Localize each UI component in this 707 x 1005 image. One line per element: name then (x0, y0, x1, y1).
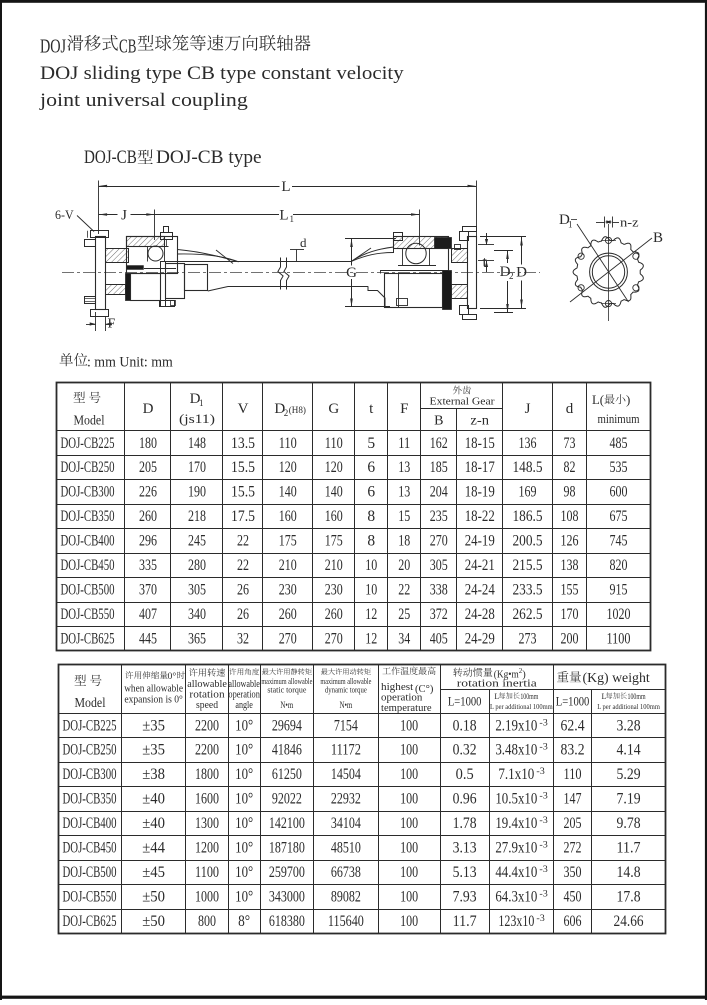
svg-text:147: 147 (564, 791, 582, 808)
svg-text:338: 338 (430, 581, 448, 598)
svg-text:DOJ sliding type CB type const: DOJ sliding type CB type constant veloci… (40, 63, 404, 84)
svg-text:2: 2 (509, 271, 514, 281)
svg-text:±35: ±35 (142, 742, 165, 759)
svg-text:15.5: 15.5 (231, 484, 255, 501)
svg-text:24-28: 24-28 (465, 606, 495, 623)
svg-text:100: 100 (400, 717, 418, 734)
svg-text:angle: angle (235, 700, 253, 711)
svg-text:0.5: 0.5 (456, 766, 474, 783)
svg-text:allowable: allowable (187, 679, 227, 690)
svg-text:5.13: 5.13 (453, 864, 477, 881)
svg-text:27.9x10: 27.9x10 (495, 840, 537, 857)
svg-text:3.48x10: 3.48x10 (495, 742, 537, 759)
svg-text:6: 6 (367, 459, 375, 476)
svg-text:13.5: 13.5 (231, 435, 255, 452)
svg-text:9.78: 9.78 (617, 815, 641, 832)
svg-text:when allowable: when allowable (124, 684, 183, 695)
svg-text:DOJ-CB250: DOJ-CB250 (63, 742, 117, 759)
svg-text:11172: 11172 (331, 742, 361, 759)
svg-text:12: 12 (365, 606, 377, 623)
svg-text:15: 15 (398, 508, 410, 525)
svg-text:13: 13 (398, 484, 410, 501)
svg-text:Model: Model (74, 414, 105, 429)
svg-text:-3: -3 (539, 865, 548, 875)
svg-text:123x10: 123x10 (498, 913, 534, 930)
svg-text:±44: ±44 (142, 840, 165, 857)
svg-text:operation: operation (228, 690, 260, 701)
svg-text:186.5: 186.5 (513, 508, 543, 525)
svg-text:48510: 48510 (331, 840, 361, 857)
svg-text:0.96: 0.96 (453, 791, 477, 808)
svg-text:260: 260 (325, 606, 343, 623)
svg-text:126: 126 (561, 533, 579, 550)
svg-text:260: 260 (279, 606, 297, 623)
svg-text:200: 200 (561, 630, 579, 647)
svg-text:temperature: temperature (381, 703, 432, 714)
svg-text:10.5x10: 10.5x10 (495, 791, 537, 808)
svg-text:606: 606 (564, 913, 582, 930)
svg-text:Model: Model (75, 696, 106, 711)
svg-text:175: 175 (279, 533, 297, 550)
svg-text:-3: -3 (539, 841, 548, 851)
svg-text:18-17: 18-17 (465, 459, 495, 476)
svg-text:G: G (328, 401, 339, 417)
svg-text:7.93: 7.93 (453, 888, 477, 905)
svg-text:18-15: 18-15 (465, 435, 495, 452)
svg-text:±45: ±45 (142, 864, 165, 881)
svg-text:4.14: 4.14 (617, 742, 641, 759)
svg-text:180: 180 (139, 435, 157, 452)
svg-text:343000: 343000 (269, 888, 305, 905)
svg-text:speed: speed (196, 700, 219, 711)
svg-text:100: 100 (400, 864, 418, 881)
svg-text:rotation: rotation (189, 690, 225, 701)
svg-text:1600: 1600 (195, 791, 219, 808)
svg-text:170: 170 (188, 459, 206, 476)
svg-text:10°: 10° (235, 717, 253, 734)
svg-text:-3: -3 (539, 792, 548, 802)
svg-text:100mm: 100mm (520, 692, 539, 701)
svg-text:10°: 10° (235, 840, 253, 857)
svg-text:±40: ±40 (142, 815, 165, 832)
svg-text:3.28: 3.28 (617, 717, 641, 734)
svg-text:535: 535 (610, 459, 628, 476)
svg-text:10°: 10° (235, 864, 253, 881)
svg-text:185: 185 (430, 459, 448, 476)
svg-text:B: B (653, 230, 663, 246)
svg-text:L=1000: L=1000 (556, 695, 590, 709)
svg-text:18-22: 18-22 (465, 508, 495, 525)
svg-text:235: 235 (430, 508, 448, 525)
svg-text:10°: 10° (235, 742, 253, 759)
svg-text:210: 210 (325, 557, 343, 574)
svg-text:10°: 10° (235, 815, 253, 832)
svg-text:11: 11 (398, 435, 410, 452)
svg-text:24-29: 24-29 (465, 630, 495, 647)
svg-text:372: 372 (430, 606, 448, 623)
svg-text:187180: 187180 (269, 840, 305, 857)
svg-text:DOJ-CB225: DOJ-CB225 (61, 435, 115, 452)
svg-text:5: 5 (367, 435, 375, 452)
svg-text:DOJ-CB350: DOJ-CB350 (63, 791, 117, 808)
svg-text:L(: L( (592, 392, 604, 407)
svg-text:100: 100 (400, 766, 418, 783)
svg-text:41846: 41846 (272, 742, 302, 759)
svg-text:340: 340 (188, 606, 206, 623)
svg-text:DOJ-CB550: DOJ-CB550 (63, 888, 117, 905)
svg-text:26: 26 (237, 606, 249, 623)
svg-text:92022: 92022 (272, 791, 302, 808)
svg-text:(H8): (H8) (289, 405, 306, 415)
svg-text:270: 270 (279, 630, 297, 647)
svg-text:296: 296 (139, 533, 157, 550)
svg-text:13: 13 (398, 459, 410, 476)
svg-text:226: 226 (139, 484, 157, 501)
svg-text:11.7: 11.7 (453, 913, 477, 930)
svg-text:±35: ±35 (142, 717, 165, 734)
svg-text:100: 100 (400, 913, 418, 930)
svg-text:370: 370 (139, 581, 157, 598)
svg-text:140: 140 (325, 484, 343, 501)
svg-text:17.5: 17.5 (231, 508, 255, 525)
svg-text:120: 120 (279, 459, 297, 476)
svg-text:136: 136 (519, 435, 537, 452)
svg-text:25: 25 (398, 606, 410, 623)
svg-text:12: 12 (365, 630, 377, 647)
svg-text:62.4: 62.4 (561, 717, 585, 734)
svg-text:-3: -3 (539, 816, 548, 826)
svg-text:1100: 1100 (195, 864, 219, 881)
svg-text:(Kg) weight: (Kg) weight (583, 670, 650, 685)
svg-text:100: 100 (400, 888, 418, 905)
svg-text:245: 245 (188, 533, 206, 550)
svg-text:218: 218 (188, 508, 206, 525)
svg-text:15.5: 15.5 (231, 459, 255, 476)
svg-text:dynamic torque: dynamic torque (325, 686, 367, 695)
svg-text:DOJ-CB625: DOJ-CB625 (61, 630, 115, 647)
svg-text:272: 272 (564, 840, 582, 857)
svg-text:static torque: static torque (267, 686, 306, 695)
svg-text:DOJ-CB300: DOJ-CB300 (63, 766, 117, 783)
svg-text:0°: 0° (168, 671, 177, 682)
svg-text:22: 22 (237, 533, 249, 550)
svg-text:±50: ±50 (142, 913, 165, 930)
svg-text:DOJ-CB450: DOJ-CB450 (63, 840, 117, 857)
svg-text:DOJ-CB400: DOJ-CB400 (63, 815, 117, 832)
svg-text:8°: 8° (238, 913, 250, 930)
svg-text:24-19: 24-19 (465, 533, 495, 550)
svg-text:N•m: N•m (280, 700, 293, 710)
svg-text:DOJ-CB500: DOJ-CB500 (63, 864, 117, 881)
svg-text:230: 230 (325, 581, 343, 598)
svg-text:73: 73 (564, 435, 576, 452)
svg-text:100: 100 (400, 840, 418, 857)
svg-text:1200: 1200 (195, 840, 219, 857)
svg-text:DOJ: DOJ (40, 36, 66, 58)
svg-text:8: 8 (367, 508, 375, 525)
svg-text:F: F (108, 317, 116, 332)
svg-text:305: 305 (430, 557, 448, 574)
svg-text:26: 26 (237, 581, 249, 598)
svg-text:100: 100 (400, 742, 418, 759)
svg-text:142100: 142100 (269, 815, 305, 832)
svg-text:618380: 618380 (269, 913, 305, 930)
svg-text:D: D (143, 401, 154, 417)
svg-text:10°: 10° (235, 888, 253, 905)
svg-text:3.13: 3.13 (453, 840, 477, 857)
svg-text:32: 32 (237, 630, 249, 647)
svg-text:600: 600 (610, 484, 628, 501)
svg-text:-3: -3 (539, 718, 548, 728)
svg-text:DOJ-CB300: DOJ-CB300 (61, 484, 115, 501)
svg-text:445: 445 (139, 630, 157, 647)
svg-text:365: 365 (188, 630, 206, 647)
svg-text:17.8: 17.8 (617, 888, 641, 905)
svg-text:24-24: 24-24 (465, 581, 495, 598)
svg-text:(js11): (js11) (179, 411, 215, 426)
svg-text:0.32: 0.32 (453, 742, 477, 759)
svg-text:305: 305 (188, 581, 206, 598)
svg-text:205: 205 (564, 815, 582, 832)
svg-text:D: D (516, 265, 527, 281)
svg-text:675: 675 (610, 508, 628, 525)
svg-text:2: 2 (284, 408, 289, 418)
svg-text:DOJ-CB350: DOJ-CB350 (61, 508, 115, 525)
svg-text:F: F (400, 401, 408, 417)
svg-text:215.5: 215.5 (513, 557, 543, 574)
svg-text:B: B (434, 414, 443, 429)
svg-text:115640: 115640 (328, 913, 364, 930)
svg-text:44.4x10: 44.4x10 (495, 864, 537, 881)
svg-text:1000: 1000 (195, 888, 219, 905)
svg-text:0.18: 0.18 (453, 717, 477, 734)
svg-text:83.2: 83.2 (561, 742, 585, 759)
svg-text:19.4x10: 19.4x10 (495, 815, 537, 832)
svg-text:-3: -3 (539, 743, 548, 753)
svg-text:138: 138 (561, 557, 579, 574)
svg-text:operation: operation (381, 693, 422, 704)
svg-text:d: d (566, 401, 574, 417)
svg-text:DOJ-CB: DOJ-CB (84, 147, 137, 168)
svg-text:29694: 29694 (272, 717, 302, 734)
svg-text:2200: 2200 (195, 742, 219, 759)
svg-text:140: 140 (279, 484, 297, 501)
svg-text:233.5: 233.5 (513, 581, 543, 598)
svg-text:G: G (346, 265, 357, 281)
svg-text:148.5: 148.5 (513, 459, 543, 476)
svg-text:minimum: minimum (598, 411, 640, 426)
svg-text:highest: highest (381, 682, 413, 693)
svg-text:800: 800 (198, 913, 216, 930)
svg-text:10°: 10° (235, 766, 253, 783)
svg-text:61250: 61250 (272, 766, 302, 783)
svg-text:L per additional 100mm: L per additional 100mm (490, 702, 553, 711)
svg-text:34: 34 (398, 630, 410, 647)
svg-text:335: 335 (139, 557, 157, 574)
svg-text:22932: 22932 (331, 791, 361, 808)
svg-text:22: 22 (398, 581, 410, 598)
svg-text:18: 18 (398, 533, 410, 550)
svg-text:10: 10 (365, 557, 377, 574)
svg-text:405: 405 (430, 630, 448, 647)
svg-text:259700: 259700 (269, 864, 305, 881)
svg-text:20: 20 (398, 557, 410, 574)
svg-text:7154: 7154 (334, 717, 358, 734)
svg-text:±50: ±50 (142, 888, 165, 905)
svg-text:DOJ-CB type: DOJ-CB type (156, 147, 262, 168)
svg-text:1020: 1020 (607, 606, 631, 623)
svg-text:1800: 1800 (195, 766, 219, 783)
svg-text:100: 100 (400, 815, 418, 832)
svg-text:DOJ-CB450: DOJ-CB450 (61, 557, 115, 574)
svg-text:820: 820 (610, 557, 628, 574)
svg-text:273: 273 (519, 630, 537, 647)
svg-text:98: 98 (564, 484, 576, 501)
svg-text:120: 120 (325, 459, 343, 476)
svg-text:24-21: 24-21 (465, 557, 495, 574)
svg-text:89082: 89082 (331, 888, 361, 905)
svg-text:18-19: 18-19 (465, 484, 495, 501)
svg-text:22: 22 (237, 557, 249, 574)
svg-text:34104: 34104 (331, 815, 361, 832)
svg-text:100mm: 100mm (628, 692, 647, 701)
svg-text:6: 6 (367, 484, 375, 501)
svg-text:262.5: 262.5 (513, 606, 543, 623)
svg-text:DOJ-CB550: DOJ-CB550 (61, 606, 115, 623)
svg-text:148: 148 (188, 435, 206, 452)
svg-text:170: 170 (561, 606, 579, 623)
svg-text:CB: CB (119, 36, 136, 58)
svg-text:±38: ±38 (142, 766, 165, 783)
svg-text:rotation inertia: rotation inertia (457, 678, 537, 690)
svg-text:14504: 14504 (331, 766, 361, 783)
svg-text:64.3x10: 64.3x10 (495, 888, 537, 905)
svg-text:): ) (626, 392, 630, 407)
svg-text:190: 190 (188, 484, 206, 501)
svg-text:DOJ-CB400: DOJ-CB400 (61, 533, 115, 550)
svg-text:1300: 1300 (195, 815, 219, 832)
svg-text:L: L (602, 692, 607, 701)
svg-text:407: 407 (139, 606, 157, 623)
svg-text:-3: -3 (539, 889, 548, 899)
svg-text:7.1x10: 7.1x10 (498, 766, 534, 783)
svg-text:450: 450 (564, 888, 582, 905)
svg-text:280: 280 (188, 557, 206, 574)
svg-text:6-V: 6-V (55, 207, 74, 222)
svg-text:expansion is 0°: expansion is 0° (124, 695, 183, 706)
svg-text:joint universal coupling: joint universal coupling (39, 90, 249, 111)
svg-text:915: 915 (610, 581, 628, 598)
svg-text:175: 175 (325, 533, 343, 550)
svg-text:t: t (483, 254, 488, 271)
svg-text:d: d (300, 235, 307, 250)
svg-text:108: 108 (561, 508, 579, 525)
svg-text:1100: 1100 (607, 630, 631, 647)
svg-text:110: 110 (325, 435, 343, 452)
svg-text:n-z: n-z (620, 215, 639, 230)
svg-text:745: 745 (610, 533, 628, 550)
svg-text:L: L (279, 208, 288, 224)
svg-text:DOJ-CB625: DOJ-CB625 (63, 913, 117, 930)
svg-text:66738: 66738 (331, 864, 361, 881)
svg-text:10°: 10° (235, 791, 253, 808)
svg-text:: mm Unit: mm: : mm Unit: mm (87, 355, 173, 371)
svg-text:160: 160 (325, 508, 343, 525)
svg-text:J: J (525, 401, 531, 417)
svg-text:L: L (281, 179, 290, 195)
svg-text:169: 169 (519, 484, 537, 501)
svg-text:±40: ±40 (142, 791, 165, 808)
svg-text:1: 1 (199, 398, 204, 408)
svg-text:200.5: 200.5 (513, 533, 543, 550)
svg-text:350: 350 (564, 864, 582, 881)
svg-text:160: 160 (279, 508, 297, 525)
svg-text:270: 270 (430, 533, 448, 550)
svg-text:204: 204 (430, 484, 448, 501)
svg-text:82: 82 (564, 459, 576, 476)
svg-text:210: 210 (279, 557, 297, 574)
svg-text:205: 205 (139, 459, 157, 476)
svg-text:J: J (121, 208, 127, 224)
svg-text:V: V (238, 401, 249, 417)
svg-text:270: 270 (325, 630, 343, 647)
svg-text:-3: -3 (536, 914, 545, 924)
svg-text:8: 8 (367, 533, 375, 550)
svg-text:L per additional 100mm: L per additional 100mm (597, 702, 660, 711)
svg-text:162: 162 (430, 435, 448, 452)
svg-text:N•m: N•m (339, 700, 352, 710)
svg-text:L=1000: L=1000 (448, 695, 482, 709)
svg-text:z-n: z-n (470, 414, 489, 429)
svg-text:14.8: 14.8 (617, 864, 641, 881)
svg-text:2200: 2200 (195, 717, 219, 734)
svg-text:DOJ-CB225: DOJ-CB225 (63, 717, 117, 734)
svg-text:7.19: 7.19 (617, 791, 641, 808)
svg-text:DOJ-CB250: DOJ-CB250 (61, 459, 115, 476)
svg-text:1.78: 1.78 (453, 815, 477, 832)
svg-text:24.66: 24.66 (614, 913, 644, 930)
svg-text:1: 1 (290, 214, 295, 224)
svg-text:11.7: 11.7 (617, 840, 641, 857)
svg-text:230: 230 (279, 581, 297, 598)
svg-text:155: 155 (561, 581, 579, 598)
svg-text:100: 100 (400, 791, 418, 808)
svg-text:5.29: 5.29 (617, 766, 641, 783)
svg-text:485: 485 (610, 435, 628, 452)
svg-text:allowable: allowable (228, 679, 260, 690)
svg-text:110: 110 (279, 435, 297, 452)
svg-text:2.19x10: 2.19x10 (495, 717, 537, 734)
svg-text:-3: -3 (536, 767, 545, 777)
svg-text:260: 260 (139, 508, 157, 525)
svg-text:110: 110 (564, 766, 582, 783)
svg-text:10: 10 (365, 581, 377, 598)
svg-text:External Gear: External Gear (430, 397, 496, 408)
svg-text:1: 1 (568, 220, 573, 230)
svg-text:DOJ-CB500: DOJ-CB500 (61, 581, 115, 598)
svg-text:L: L (494, 692, 499, 701)
